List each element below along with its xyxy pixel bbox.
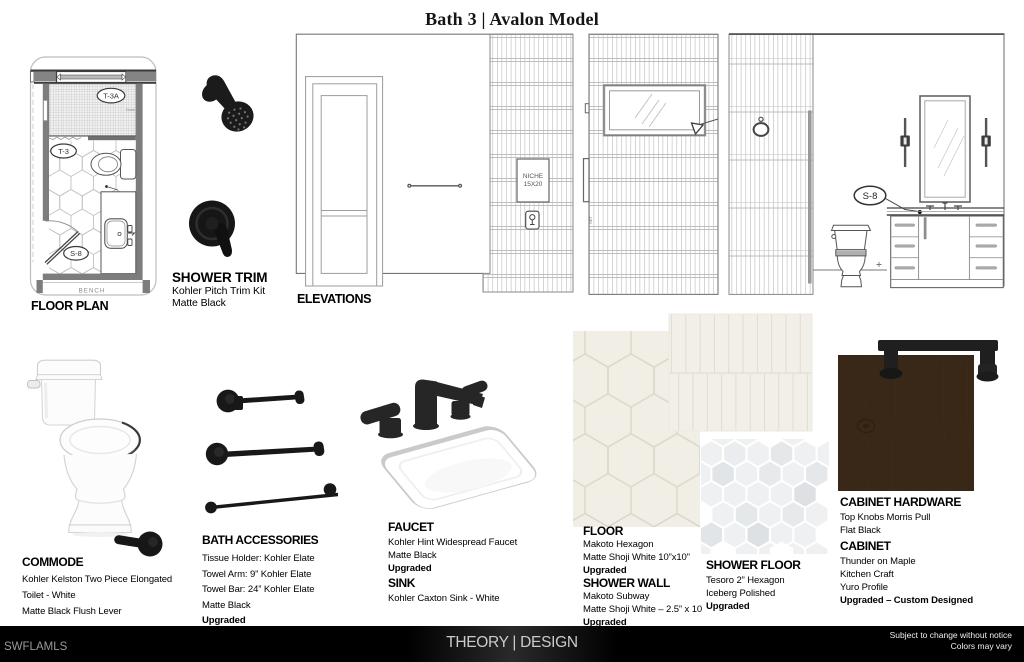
svg-text:S-8: S-8 bbox=[863, 191, 878, 202]
svg-text:NICHE: NICHE bbox=[523, 173, 544, 180]
svg-text:T-3A: T-3A bbox=[103, 91, 119, 100]
svg-text:T-3: T-3 bbox=[58, 147, 69, 156]
svg-text:BENCH: BENCH bbox=[79, 288, 106, 295]
svg-text:Drain: Drain bbox=[126, 108, 135, 112]
svg-text:S-8: S-8 bbox=[70, 249, 82, 258]
svg-text:NET: NET bbox=[588, 215, 593, 224]
svg-text:15X20: 15X20 bbox=[524, 181, 543, 188]
